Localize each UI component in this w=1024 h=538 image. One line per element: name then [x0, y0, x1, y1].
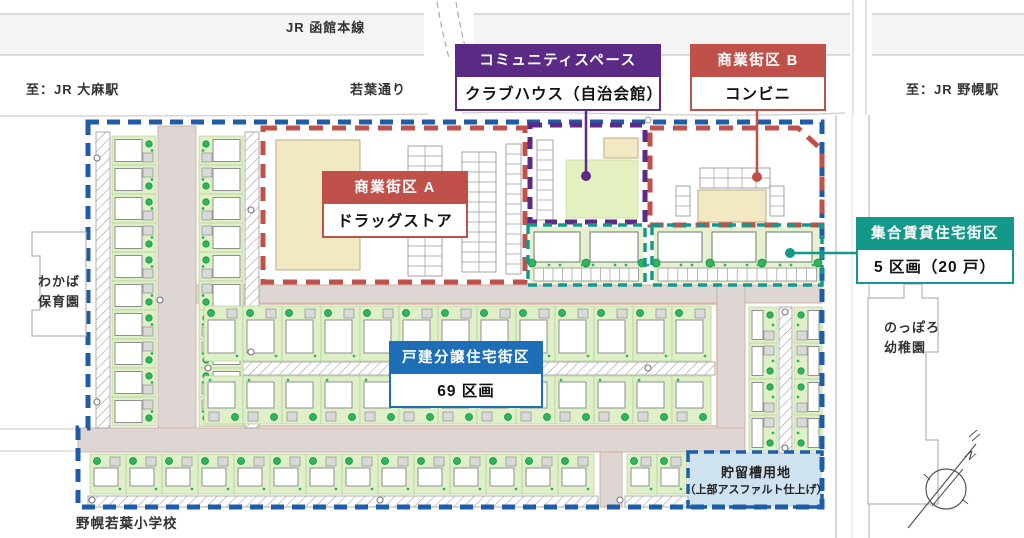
site-plan-map: N JR 函館本線 至：JR 大麻駅 若葉通り 至：JR 野幌駅 わかば 保育園… [0, 0, 1024, 538]
storage-tank-label-line1: 貯留槽用地 [682, 462, 830, 481]
rental-housing-callout: 集合賃貸住宅街区 5 区画（20 戸） [856, 217, 1014, 284]
school-label: 野幌若葉小学校 [76, 514, 178, 534]
community-lawn [566, 160, 638, 218]
nursery-label-line1: わかば [38, 272, 80, 292]
kindergarten-label: のっぽろ 幼稚園 [884, 318, 940, 358]
commercial-a-callout-title: 商業街区 A [322, 171, 468, 202]
nursery-label-line2: 保育園 [38, 292, 80, 312]
community-space-callout: コミュニティスペース クラブハウス（自治会館） [455, 44, 661, 111]
clubhouse-building [604, 138, 638, 158]
rental-housing-callout-body: 5 区画（20 戸） [856, 248, 1014, 284]
commercial-b-callout-body: コンビニ [690, 75, 826, 111]
kindergarten-label-line2: 幼稚園 [884, 338, 940, 358]
detached-housing-callout: 戸建分譲住宅街区 69 区画 [389, 341, 543, 408]
kindergarten-building-outline [868, 284, 938, 504]
convenience-store-building [698, 190, 766, 222]
storage-tank-label: 貯留槽用地 （上部アスファルト仕上げ） [682, 462, 830, 497]
to-nopporo-station-label: 至：JR 野幌駅 [906, 80, 999, 100]
wakaba-street-label: 若葉通り [350, 80, 406, 100]
community-space-callout-title: コミュニティスペース [455, 44, 661, 75]
storage-tank-label-line2: （上部アスファルト仕上げ） [682, 481, 830, 497]
detached-housing-callout-title: 戸建分譲住宅街区 [389, 341, 543, 372]
rental-housing-callout-title: 集合賃貸住宅街区 [856, 217, 1014, 248]
commercial-a-callout-body: ドラッグストア [322, 202, 468, 238]
compass-north-letter: N [961, 446, 979, 465]
nursery-label: わかば 保育園 [38, 272, 80, 312]
detached-housing-callout-body: 69 区画 [389, 372, 543, 408]
commercial-b-callout: 商業街区 B コンビニ [690, 44, 826, 111]
railway-label: JR 函館本線 [286, 18, 365, 38]
commercial-b-callout-title: 商業街区 B [690, 44, 826, 75]
community-space-callout-body: クラブハウス（自治会館） [455, 75, 661, 111]
to-oasa-station-label: 至：JR 大麻駅 [26, 80, 119, 100]
commercial-a-callout: 商業街区 A ドラッグストア [322, 171, 468, 238]
kindergarten-label-line1: のっぽろ [884, 318, 940, 338]
